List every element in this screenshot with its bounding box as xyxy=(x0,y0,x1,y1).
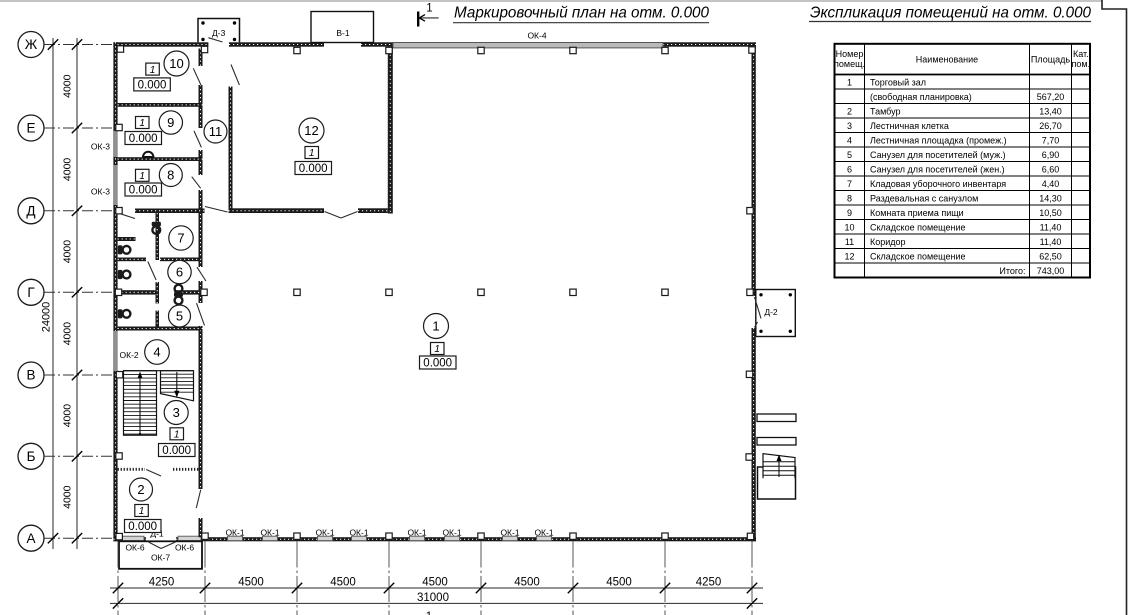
svg-text:1: 1 xyxy=(426,611,432,615)
svg-text:Складское помещение: Складское помещение xyxy=(870,251,965,261)
svg-text:ОК-1: ОК-1 xyxy=(534,527,553,537)
svg-text:Д: Д xyxy=(26,204,35,219)
svg-text:ОК-3: ОК-3 xyxy=(91,142,110,152)
svg-text:0.000: 0.000 xyxy=(423,358,452,370)
svg-text:Тамбур: Тамбур xyxy=(870,106,901,116)
svg-text:ОК-6: ОК-6 xyxy=(125,543,144,553)
svg-text:ОК-1: ОК-1 xyxy=(442,527,461,537)
svg-text:4000: 4000 xyxy=(62,74,74,98)
svg-text:11,40: 11,40 xyxy=(1040,237,1062,247)
svg-text:1: 1 xyxy=(174,430,180,441)
svg-text:6: 6 xyxy=(847,164,852,174)
svg-text:4500: 4500 xyxy=(330,577,356,589)
svg-text:567,20: 567,20 xyxy=(1037,92,1065,102)
svg-text:4,40: 4,40 xyxy=(1042,179,1060,189)
svg-text:2: 2 xyxy=(137,482,144,497)
svg-text:4500: 4500 xyxy=(422,577,448,589)
svg-text:Ж: Ж xyxy=(25,37,38,52)
svg-text:7: 7 xyxy=(847,179,852,189)
svg-text:Г: Г xyxy=(27,285,35,300)
svg-text:помещ.: помещ. xyxy=(834,59,865,69)
svg-text:10: 10 xyxy=(844,222,854,232)
svg-text:4000: 4000 xyxy=(62,485,74,509)
svg-text:ОК-6: ОК-6 xyxy=(175,543,194,553)
svg-text:11: 11 xyxy=(209,124,223,139)
svg-text:Коридор: Коридор xyxy=(870,237,906,247)
svg-text:Санузел для посетителей (муж.): Санузел для посетителей (муж.) xyxy=(870,150,1006,160)
svg-text:4: 4 xyxy=(153,345,160,360)
svg-text:10: 10 xyxy=(169,56,183,71)
svg-text:ОК-1: ОК-1 xyxy=(225,527,244,537)
svg-text:0.000: 0.000 xyxy=(128,521,157,533)
svg-text:4000: 4000 xyxy=(62,158,74,182)
svg-text:ОК-2: ОК-2 xyxy=(120,350,139,360)
svg-text:12: 12 xyxy=(844,251,854,261)
svg-text:4250: 4250 xyxy=(696,577,722,589)
svg-text:11,40: 11,40 xyxy=(1040,222,1062,232)
svg-text:2: 2 xyxy=(847,106,852,116)
svg-text:1: 1 xyxy=(150,65,156,76)
svg-text:Торговый зал: Торговый зал xyxy=(870,77,926,87)
svg-text:4000: 4000 xyxy=(62,240,74,264)
svg-text:4000: 4000 xyxy=(62,404,74,428)
svg-text:6,90: 6,90 xyxy=(1042,150,1060,160)
svg-text:0.000: 0.000 xyxy=(129,133,158,145)
svg-text:Д-3: Д-3 xyxy=(212,28,226,38)
svg-text:В-1: В-1 xyxy=(336,28,350,38)
svg-text:3: 3 xyxy=(173,405,180,420)
svg-text:В: В xyxy=(26,368,35,383)
svg-text:8: 8 xyxy=(847,193,852,203)
svg-text:4250: 4250 xyxy=(149,577,175,589)
svg-text:Кладовая уборочного инвентаря: Кладовая уборочного инвентаря xyxy=(870,179,1006,189)
svg-text:Санузел для посетителей (жен.): Санузел для посетителей (жен.) xyxy=(870,164,1005,174)
svg-text:7: 7 xyxy=(177,231,184,246)
svg-text:(свободная планировка): (свободная планировка) xyxy=(870,92,972,102)
svg-text:4500: 4500 xyxy=(514,577,540,589)
svg-text:Итого:: Итого: xyxy=(999,266,1025,276)
svg-text:Номер: Номер xyxy=(836,49,864,59)
svg-text:6,60: 6,60 xyxy=(1042,164,1060,174)
svg-text:ОК-1: ОК-1 xyxy=(500,527,519,537)
svg-text:11: 11 xyxy=(845,237,854,247)
svg-text:13,40: 13,40 xyxy=(1039,106,1062,116)
svg-text:Экспликация помещений на отм.: Экспликация помещений на отм. 0.000 xyxy=(810,5,1091,22)
svg-text:Раздевальная с санузлом: Раздевальная с санузлом xyxy=(870,193,978,203)
svg-text:26,70: 26,70 xyxy=(1039,121,1062,131)
svg-text:0.000: 0.000 xyxy=(299,163,328,175)
svg-text:1: 1 xyxy=(139,171,145,182)
svg-text:3: 3 xyxy=(847,121,852,131)
svg-text:ОК-3: ОК-3 xyxy=(91,187,110,197)
svg-text:1: 1 xyxy=(309,148,315,159)
svg-text:ОК-1: ОК-1 xyxy=(260,527,279,537)
svg-text:Лестничная площадка (промеж.): Лестничная площадка (промеж.) xyxy=(870,135,1007,145)
svg-text:Наименование: Наименование xyxy=(916,55,978,65)
svg-text:1: 1 xyxy=(139,506,145,517)
svg-text:Лестничная клетка: Лестничная клетка xyxy=(870,121,949,131)
svg-text:1: 1 xyxy=(434,344,440,355)
svg-text:ОК-1: ОК-1 xyxy=(407,527,426,537)
svg-text:ОК-4: ОК-4 xyxy=(527,31,546,41)
svg-text:24000: 24000 xyxy=(41,302,53,333)
svg-text:1: 1 xyxy=(426,3,432,15)
svg-text:ОК-1: ОК-1 xyxy=(315,527,334,537)
svg-text:1: 1 xyxy=(432,319,439,334)
svg-text:14,30: 14,30 xyxy=(1039,193,1062,203)
svg-text:А: А xyxy=(26,531,35,546)
svg-text:62,50: 62,50 xyxy=(1039,251,1062,261)
svg-text:1: 1 xyxy=(139,118,145,129)
svg-text:Б: Б xyxy=(27,449,36,464)
svg-text:7,70: 7,70 xyxy=(1042,135,1060,145)
svg-text:Маркировочный план на отм. 0.0: Маркировочный план на отм. 0.000 xyxy=(454,5,709,22)
svg-text:12: 12 xyxy=(304,123,318,138)
svg-text:Складское помещение: Складское помещение xyxy=(870,222,965,232)
svg-text:5: 5 xyxy=(847,150,852,160)
svg-text:ОК-1: ОК-1 xyxy=(349,527,368,537)
svg-text:пом.: пом. xyxy=(1072,59,1091,69)
svg-text:Площадь: Площадь xyxy=(1031,55,1070,65)
svg-text:4000: 4000 xyxy=(62,322,74,346)
svg-text:Кат.: Кат. xyxy=(1073,49,1089,59)
svg-text:4500: 4500 xyxy=(238,577,264,589)
svg-text:6: 6 xyxy=(176,265,183,280)
svg-text:8: 8 xyxy=(167,168,174,183)
svg-text:31000: 31000 xyxy=(417,592,449,604)
svg-text:0.000: 0.000 xyxy=(138,80,167,92)
svg-text:ОК-7: ОК-7 xyxy=(151,553,170,563)
svg-text:743,00: 743,00 xyxy=(1037,266,1065,276)
svg-text:Д-2: Д-2 xyxy=(764,307,778,317)
svg-text:5: 5 xyxy=(176,309,183,324)
svg-text:10,50: 10,50 xyxy=(1039,208,1062,218)
svg-text:Комната приема пищи: Комната приема пищи xyxy=(870,208,964,218)
svg-text:1: 1 xyxy=(847,77,852,87)
svg-text:4: 4 xyxy=(847,135,852,145)
svg-text:Е: Е xyxy=(26,121,35,136)
svg-text:9: 9 xyxy=(167,115,174,130)
svg-text:0.000: 0.000 xyxy=(129,185,158,197)
svg-text:0.000: 0.000 xyxy=(162,445,191,457)
svg-text:4500: 4500 xyxy=(606,577,632,589)
svg-text:9: 9 xyxy=(847,208,852,218)
